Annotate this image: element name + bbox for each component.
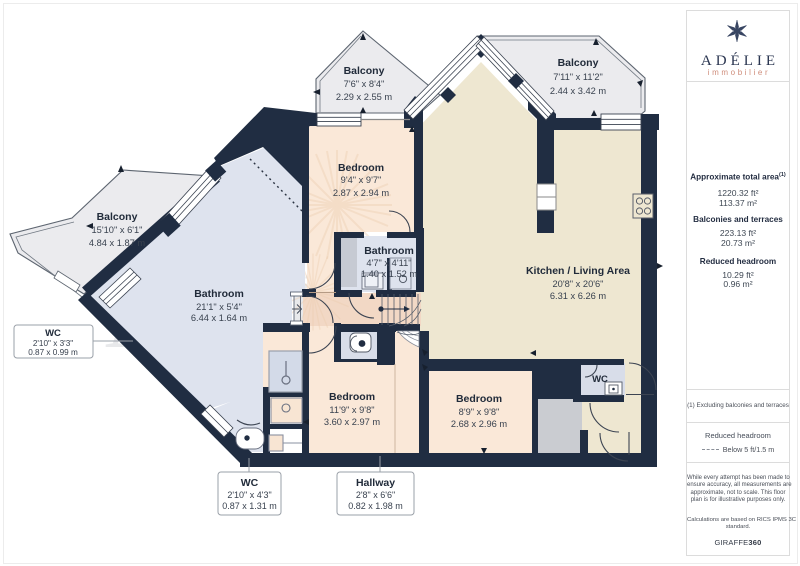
svg-text:11'9" x 9'8": 11'9" x 9'8": [329, 405, 374, 415]
svg-text:WC: WC: [45, 328, 61, 339]
svg-text:1.40 x 1.52 m: 1.40 x 1.52 m: [361, 269, 418, 279]
svg-text:Bedroom: Bedroom: [456, 393, 502, 405]
svg-text:2'8" x 6'6": 2'8" x 6'6": [356, 490, 395, 500]
svg-text:2'10" x 3'3": 2'10" x 3'3": [33, 339, 73, 348]
svg-text:4.84 x 1.87 m: 4.84 x 1.87 m: [89, 238, 146, 248]
svg-text:0.82 x 1.98 m: 0.82 x 1.98 m: [348, 501, 403, 511]
svg-text:Balcony: Balcony: [97, 211, 138, 223]
svg-text:2.68 x 2.96 m: 2.68 x 2.96 m: [451, 419, 508, 429]
svg-text:2.29 x 2.55 m: 2.29 x 2.55 m: [336, 92, 393, 102]
svg-text:21'1" x 5'4": 21'1" x 5'4": [196, 302, 242, 312]
svg-text:2.87 x 2.94 m: 2.87 x 2.94 m: [333, 188, 390, 198]
svg-text:4'7" x 4'11": 4'7" x 4'11": [366, 258, 411, 268]
svg-text:0.87 x 0.99 m: 0.87 x 0.99 m: [28, 348, 78, 357]
svg-text:7'11" x 11'2": 7'11" x 11'2": [553, 72, 603, 82]
svg-text:6.31 x 6.26 m: 6.31 x 6.26 m: [550, 291, 607, 301]
svg-text:Bedroom: Bedroom: [329, 391, 375, 403]
svg-text:WC: WC: [592, 374, 608, 385]
svg-text:0.87 x 1.31 m: 0.87 x 1.31 m: [222, 501, 277, 511]
svg-text:20'8" x 20'6": 20'8" x 20'6": [553, 279, 604, 289]
svg-text:2.44 x 3.42 m: 2.44 x 3.42 m: [550, 86, 607, 96]
svg-text:Bedroom: Bedroom: [338, 162, 384, 174]
svg-text:8'9" x 9'8": 8'9" x 9'8": [459, 407, 500, 417]
svg-text:3.60 x 2.97 m: 3.60 x 2.97 m: [324, 417, 381, 427]
svg-text:WC: WC: [241, 477, 259, 489]
svg-text:15'10" x 6'1": 15'10" x 6'1": [92, 225, 143, 235]
svg-text:Balcony: Balcony: [344, 65, 385, 77]
svg-text:6.44 x 1.64 m: 6.44 x 1.64 m: [191, 313, 248, 323]
svg-text:Balcony: Balcony: [558, 57, 599, 69]
svg-text:7'6" x 8'4": 7'6" x 8'4": [344, 79, 385, 89]
svg-text:Hallway: Hallway: [356, 477, 395, 489]
svg-text:2'10" x 4'3": 2'10" x 4'3": [227, 490, 271, 500]
svg-text:Bathroom: Bathroom: [194, 288, 244, 300]
svg-text:Bathroom: Bathroom: [364, 245, 414, 257]
svg-text:9'4" x 9'7": 9'4" x 9'7": [341, 175, 382, 185]
svg-text:Kitchen / Living Area: Kitchen / Living Area: [526, 265, 630, 277]
